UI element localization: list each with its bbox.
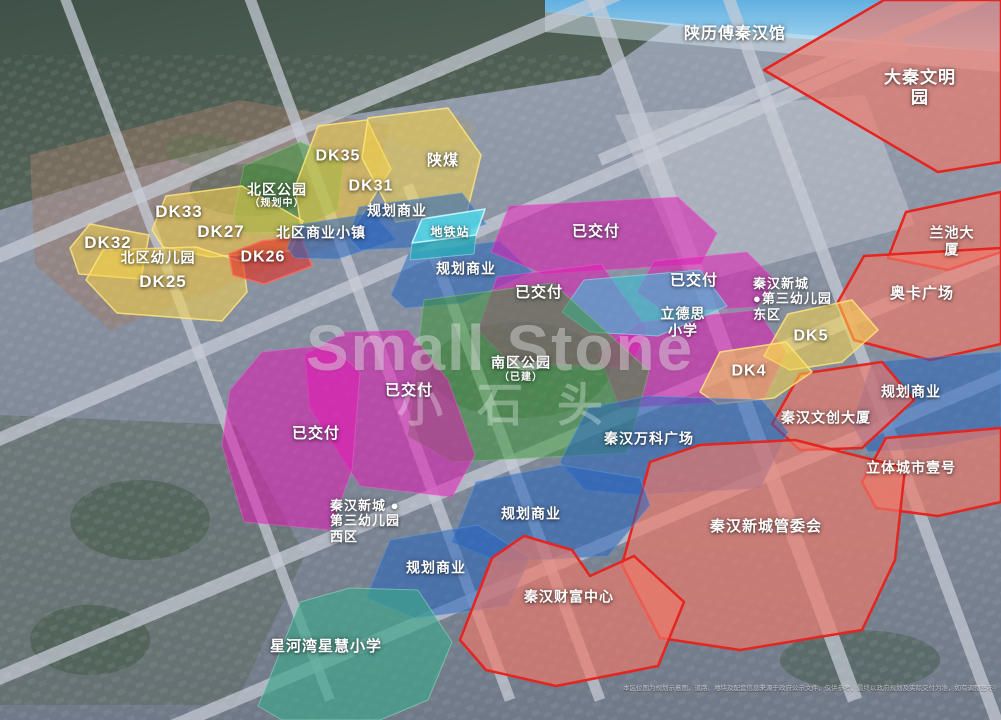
label-l_wenchuang: 秦汉文创大厦 — [781, 410, 871, 427]
label-l_yjf5: 已交付 — [292, 425, 340, 443]
label-l_gwh: 秦汉新城管委会 — [710, 518, 822, 536]
label-l_wanke: 秦汉万科广场 — [604, 431, 694, 448]
label-l_dk25: DK25 — [139, 272, 186, 292]
label-l_xinghewan: 星河湾星慧小学 — [270, 638, 382, 656]
label-l_metro: 地铁站 — [430, 225, 469, 239]
label-l_lidesi: 立德思 小学 — [661, 305, 706, 338]
masterplan-aerial-map: 陕历傅秦汉馆大秦文明园DK35陕煤DK31北区公园（规划中）DK33DK27DK… — [0, 0, 1001, 720]
label-l_yjf1: 已交付 — [572, 223, 620, 241]
label-layer: 陕历傅秦汉馆大秦文明园DK35陕煤DK31北区公园（规划中）DK33DK27DK… — [0, 0, 1001, 720]
label-l_kg_west: 秦汉新城 ● 第三幼儿园 西区 — [330, 498, 400, 544]
label-l_kg_east: 秦汉新城 ●第三幼儿园 东区 — [753, 276, 832, 322]
label-l_ghsy3: 规划商业 — [881, 384, 941, 401]
label-l_shaanli: 陕历傅秦汉馆 — [684, 26, 786, 45]
label-l_dk4: DK4 — [731, 363, 766, 382]
label-l_dk32: DK32 — [84, 233, 131, 253]
label-l_caifu: 秦汉财富中心 — [524, 589, 614, 606]
label-l_dk33: DK33 — [155, 202, 202, 222]
label-l_ghsy1: 规划商业 — [367, 203, 427, 220]
label-l_dk35: DK35 — [316, 148, 361, 167]
label-l_dk27: DK27 — [197, 222, 244, 242]
label-l_dk31: DK31 — [349, 178, 394, 197]
label-l_lanchi: 兰池大厦 — [928, 224, 977, 257]
label-l_nanqu_park_sub: （已建） — [499, 372, 543, 384]
label-l_bizt: 北区商业小镇 — [276, 225, 366, 242]
label-l_dk26: DK26 — [241, 249, 286, 268]
label-l_ghsy4: 规划商业 — [501, 506, 561, 523]
label-l_beiqu_park: 北区公园 — [247, 182, 307, 199]
label-l_ghsy5: 规划商业 — [406, 560, 466, 577]
label-l_beiqu_kg: 北区幼儿园 — [121, 250, 196, 267]
label-l_yjf2: 已交付 — [670, 272, 718, 290]
label-l_nanqu_park: 南区公园 — [491, 355, 551, 372]
label-l_daqin: 大秦文明园 — [880, 68, 961, 108]
label-l_yjf4: 已交付 — [385, 382, 433, 400]
label-l_yjf3: 已交付 — [515, 284, 563, 302]
label-l_aoka: 奥卡广场 — [890, 285, 954, 303]
disclaimer-text: 本区位图为规划示意图，道路、地块及配套信息来源于政府公示文件，仅供参考，最终以政… — [623, 682, 995, 692]
label-l_ghsy2: 规划商业 — [436, 261, 496, 278]
label-l_shanmei: 陕煤 — [427, 152, 459, 170]
label-l_dk5: DK5 — [793, 328, 828, 347]
label-l_beiqu_park_sub: （规划中） — [250, 198, 305, 210]
label-l_liti: 立体城市壹号 — [866, 460, 956, 477]
